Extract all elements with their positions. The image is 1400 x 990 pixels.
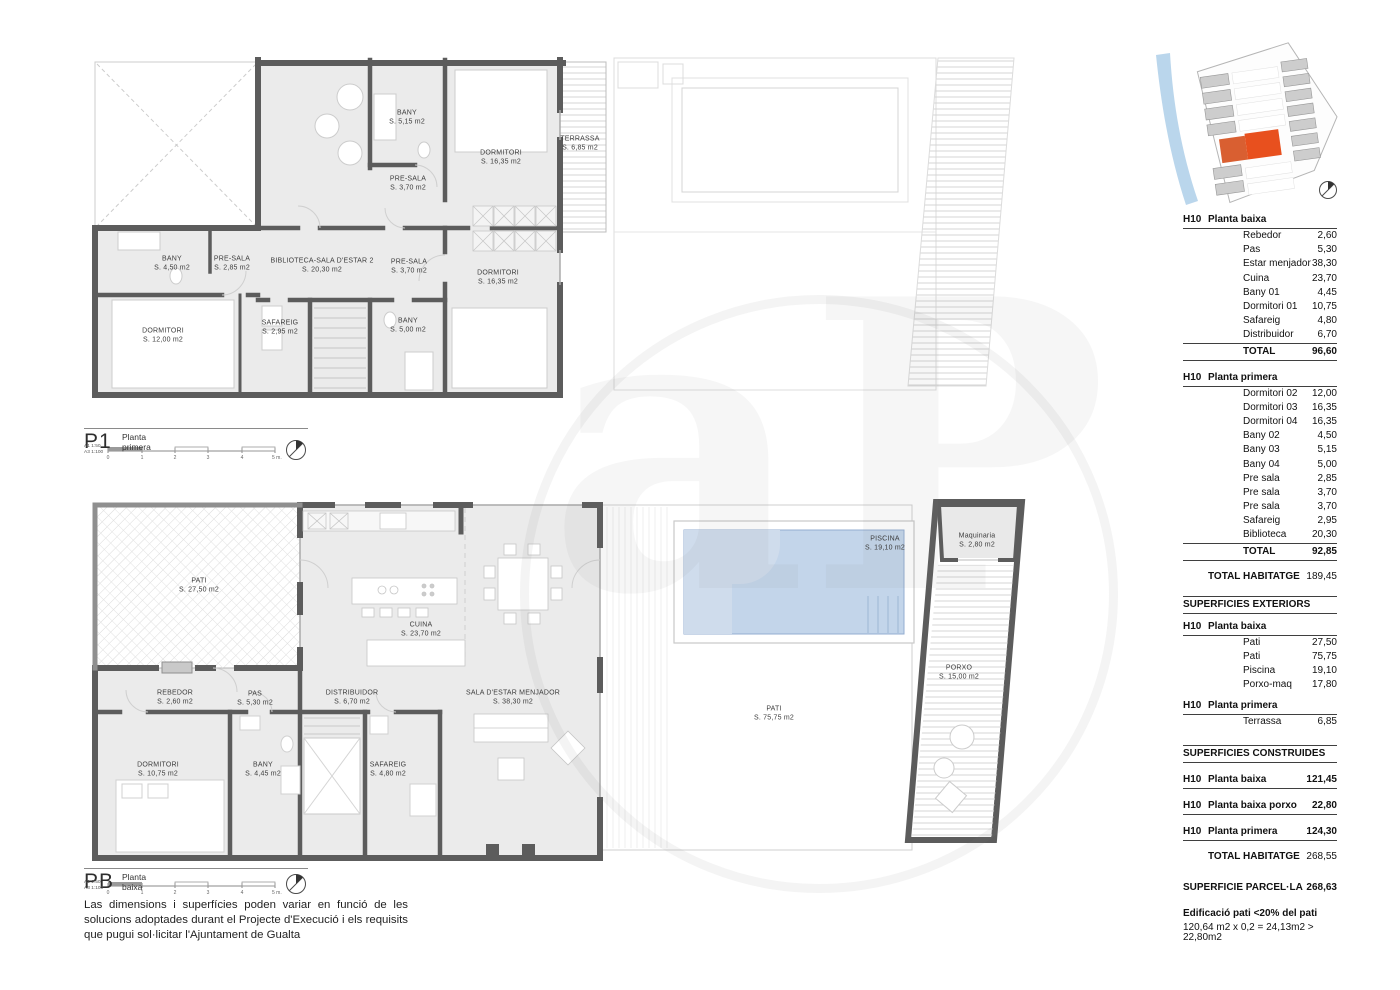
table-row: Bany 024,50 xyxy=(1183,429,1337,443)
table-row: Distribuidor6,70 xyxy=(1183,328,1337,342)
scale-tick: 3 xyxy=(207,455,210,461)
table-section-header: H10Planta baixa xyxy=(1183,214,1337,229)
room-label: PISCINAS. 19,10 m2 xyxy=(865,535,905,554)
scale-tick: 1 xyxy=(141,455,144,461)
river xyxy=(1156,53,1198,205)
column-stub xyxy=(522,844,535,858)
p1-floor-plan-drawing xyxy=(95,58,1014,395)
construides-row: H10 Planta baixa porxo 22,80 xyxy=(1183,798,1337,815)
room-label: TERRASSAS. 6,85 m2 xyxy=(560,135,599,154)
table-row: Estar menjador38,30 xyxy=(1183,257,1337,271)
table-total-row: TOTAL92,85 xyxy=(1183,543,1337,561)
scale-tick: 4 xyxy=(241,890,244,896)
table-row: Pre sala3,70 xyxy=(1183,486,1337,500)
scale-tick: 1 xyxy=(141,890,144,896)
deck-strip xyxy=(602,507,672,848)
plan-name: Planta baixa xyxy=(122,872,146,892)
pb-floor-plan-drawing xyxy=(95,502,1022,858)
table-row: Rebedor2,60 xyxy=(1183,229,1337,243)
table-row: Bany 014,45 xyxy=(1183,286,1337,300)
plan-name: Planta primera xyxy=(122,432,151,452)
table-row: Dormitori 0212,00 xyxy=(1183,387,1337,401)
column-stub xyxy=(486,844,499,858)
table-row: Dormitori 0316,35 xyxy=(1183,401,1337,415)
construides-header: SUPERFICIES CONSTRUIDES xyxy=(1183,745,1337,763)
site-location-map xyxy=(1156,38,1347,205)
table-total-row: TOTAL96,60 xyxy=(1183,343,1337,361)
scale-tick: 4 xyxy=(241,455,244,461)
room-label: DISTRIBUIDORS. 6,70 m2 xyxy=(326,689,379,708)
pati-gate xyxy=(162,662,192,673)
scale-tick: 0 xyxy=(107,890,110,896)
void-over-pati xyxy=(95,62,258,228)
room-label: PASS. 5,30 m2 xyxy=(237,690,273,709)
room-label: DORMITORIS. 16,35 m2 xyxy=(477,269,519,288)
room-label: BANYS. 4,50 m2 xyxy=(154,255,190,274)
room-label: DORMITORIS. 12,00 m2 xyxy=(142,327,184,346)
plan-sheet: aP BANYS. 5,15 m2 DORMITORIS. 16,35 m2 T… xyxy=(0,0,1400,990)
scale-tick: 5 m. xyxy=(272,455,282,461)
exteriors-header: SUPERFICIES EXTERIORS xyxy=(1183,596,1337,614)
note-text: 120,64 m2 x 0,2 = 24,13m2 > 22,80m2 xyxy=(1183,923,1337,943)
ground-below-outline xyxy=(614,58,936,390)
room-label: PATIS. 75,75 m2 xyxy=(754,705,794,724)
room-label: PORXOS. 15,00 m2 xyxy=(939,664,979,683)
porxo-below-hatch xyxy=(908,58,1014,386)
divider xyxy=(84,428,308,429)
table-row: Pati75,75 xyxy=(1183,650,1337,664)
scale-tick: 5 m. xyxy=(272,890,282,896)
room-label: PATIS. 27,50 m2 xyxy=(179,577,219,596)
note-title: Edificació pati <20% del pati xyxy=(1183,909,1337,919)
scale-tick: 2 xyxy=(174,455,177,461)
north-arrow-icon xyxy=(287,441,306,460)
table-row: Safareig2,95 xyxy=(1183,514,1337,528)
table-row: Pre sala3,70 xyxy=(1183,500,1337,514)
divider xyxy=(84,868,308,869)
room-label: MaquinariaS. 2,80 m2 xyxy=(959,532,996,551)
room-label: SAFAREIGS. 4,80 m2 xyxy=(370,761,407,780)
table-row: Cuina23,70 xyxy=(1183,272,1337,286)
table-row: Dormitori 0416,35 xyxy=(1183,415,1337,429)
table-section-header: H10Planta primera xyxy=(1183,372,1337,387)
table-row: Pati27,50 xyxy=(1183,636,1337,650)
scale-note: A1 1:50 A3 1:100 xyxy=(84,444,103,456)
room-label: PRE-SALAS. 3,70 m2 xyxy=(390,175,426,194)
table-row: Pas5,30 xyxy=(1183,243,1337,257)
scale-tick: 2 xyxy=(174,890,177,896)
room-label: PRE-SALAS. 2,85 m2 xyxy=(214,255,250,274)
north-arrow-icon xyxy=(287,875,306,894)
room-label: CUINAS. 23,70 m2 xyxy=(401,621,441,640)
north-arrow-icon xyxy=(1320,182,1337,199)
table-row: Dormitori 0110,75 xyxy=(1183,300,1337,314)
table-row: Bany 035,15 xyxy=(1183,443,1337,457)
construides-row: H10 Planta baixa 121,45 xyxy=(1183,772,1337,789)
table-row: Piscina19,10 xyxy=(1183,664,1337,678)
table-row: Porxo-maq17,80 xyxy=(1183,678,1337,692)
scale-tick: 0 xyxy=(107,455,110,461)
room-label: REBEDORS. 2,60 m2 xyxy=(157,689,193,708)
total-habitatge-row: TOTAL HABITATGE189,45 xyxy=(1183,570,1337,584)
room-label: DORMITORIS. 16,35 m2 xyxy=(480,149,522,168)
room-label: PRE-SALAS. 3,70 m2 xyxy=(391,258,427,277)
table-section-header: H10Planta primera xyxy=(1183,700,1337,715)
scale-note: A1 1:50 A3 1:100 xyxy=(84,880,103,892)
room-label: BANYS. 4,45 m2 xyxy=(245,761,281,780)
room-label: BANYS. 5,15 m2 xyxy=(389,109,425,128)
room-label: SAFAREIGS. 2,95 m2 xyxy=(262,319,299,338)
total-habitatge-row: TOTAL HABITATGE268,55 xyxy=(1183,850,1337,864)
table-row: Safareig4,80 xyxy=(1183,314,1337,328)
construides-row: H10 Planta primera 124,30 xyxy=(1183,824,1337,841)
room-label: SALA D'ESTAR MENJADORS. 38,30 m2 xyxy=(466,689,560,708)
area-table-panel: H10Planta baixa Rebedor2,60 Pas5,30 Esta… xyxy=(1183,214,1337,943)
scale-tick: 3 xyxy=(207,890,210,896)
disclaimer-text: Las dimensions i superfícies poden varia… xyxy=(84,898,408,943)
parcella-row: SUPERFICIE PARCEL·LA268,63 xyxy=(1183,883,1337,893)
room-label: BANYS. 5,00 m2 xyxy=(390,317,426,336)
room-label: BIBLIOTECA-SALA D'ESTAR 2S. 20,30 m2 xyxy=(270,257,373,276)
table-section-header: H10Planta baixa xyxy=(1183,621,1337,636)
table-row: Pre sala2,85 xyxy=(1183,472,1337,486)
room-label: DORMITORIS. 10,75 m2 xyxy=(137,761,179,780)
table-row: Bany 045,00 xyxy=(1183,457,1337,471)
table-row: Terrassa6,85 xyxy=(1183,715,1337,729)
table-row: Biblioteca20,30 xyxy=(1183,528,1337,542)
